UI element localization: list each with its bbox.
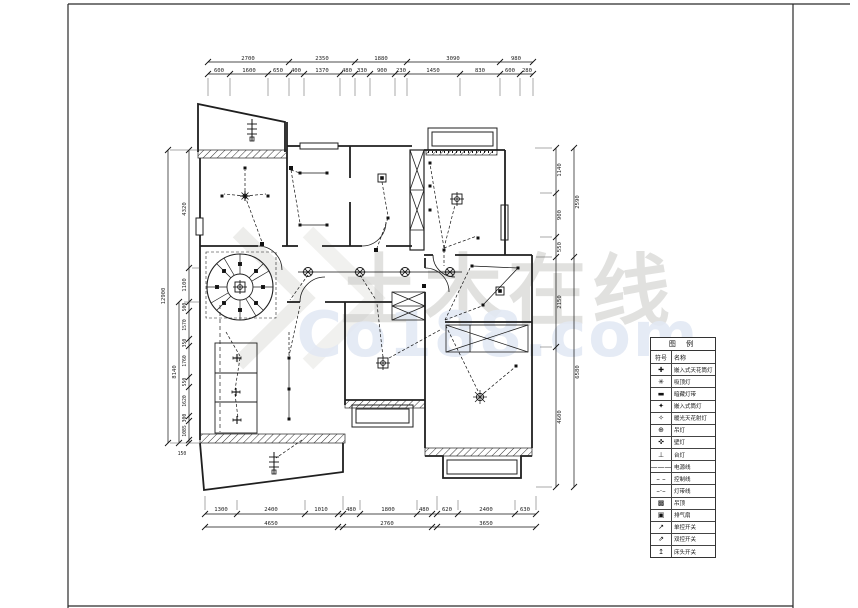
dim-label: 1880: [374, 56, 387, 62]
legend-row: ———电源线: [651, 461, 715, 473]
downlight-icon: ✦: [651, 401, 672, 412]
dim-label: 550: [557, 242, 563, 252]
dim-label: 1370: [315, 68, 328, 74]
legend-title: 图 例: [651, 338, 715, 351]
dim-label: 400: [291, 68, 301, 74]
legend-row: ✳吸顶灯: [651, 376, 715, 388]
legend-row: ▬暗藏灯带: [651, 388, 715, 400]
dim-label: 2400: [264, 507, 277, 513]
dim-label: 4600: [557, 410, 563, 423]
legend-row: ↗单控开关: [651, 522, 715, 534]
dim-label: 3090: [446, 56, 459, 62]
dim-label: 830: [475, 68, 485, 74]
dim-label: 1085: [182, 425, 188, 437]
legend-row-name: 暖光天花射灯: [672, 413, 715, 424]
dim-label: 1300: [214, 507, 227, 513]
dim-label: 330: [357, 68, 367, 74]
chandelier-icon: [247, 119, 257, 141]
wall-lamp-icon: ✜: [651, 437, 672, 448]
ceiling-panel-icon: ▩: [651, 498, 672, 509]
bedside-switch-icon: ↥: [651, 546, 672, 557]
legend-table: 图 例 符号 名称 ✚嵌入式天花筒灯 ✳吸顶灯 ▬暗藏灯带 ✦嵌入式筒灯 ✧暖光…: [650, 337, 716, 558]
dim-label: 1570: [182, 319, 188, 331]
dim-label: 4650: [264, 521, 277, 527]
dim-label: 1100: [182, 278, 188, 291]
dim-label: 1760: [182, 355, 188, 367]
recessed-downlight-icon: ✚: [651, 364, 672, 375]
legend-row-name: 吊顶: [672, 498, 715, 509]
dim-label: 12900: [161, 288, 167, 305]
solid-line-icon: ———: [651, 461, 672, 472]
dim-label: 980: [511, 56, 521, 62]
legend-row: – –控制线: [651, 473, 715, 485]
dimensions-bottom: 1300 2400 1010 480 1800 480 620 2400 630…: [202, 496, 539, 530]
dim-label: 1450: [426, 68, 439, 74]
dim-label: 900: [377, 68, 387, 74]
legend-row-name: 床头开关: [672, 546, 715, 557]
table-lamp-icon: ⊥: [651, 449, 672, 460]
legend-row-name: 控制线: [672, 473, 715, 484]
dim-label: 350: [182, 339, 188, 348]
square-light-icon: [376, 356, 390, 370]
dim-label: 600: [505, 68, 515, 74]
square-light-icon: [450, 192, 464, 206]
legend-row-name: 排气扇: [672, 510, 715, 521]
legend-row-name: 单控开关: [672, 522, 715, 533]
legend-row: ✧暖光天花射灯: [651, 413, 715, 425]
legend-row-name: 双控开关: [672, 534, 715, 545]
dim-label: 2400: [479, 507, 492, 513]
dim-label: 1600: [242, 68, 255, 74]
legend-row-name: 嵌入式筒灯: [672, 401, 715, 412]
dim-label: 500: [182, 303, 188, 312]
legend-row: ✜壁灯: [651, 437, 715, 449]
spotlight-icon: ✧: [651, 413, 672, 424]
dim-label: 480: [419, 507, 429, 513]
cad-drawing-canvas: 土木在线 Co188.com: [0, 0, 858, 608]
legend-row: ✦嵌入式筒灯: [651, 401, 715, 413]
dim-label: 480: [346, 507, 356, 513]
legend-row: ▣排气扇: [651, 510, 715, 522]
legend-row: ▩吊顶: [651, 498, 715, 510]
dim-label: 480: [342, 68, 352, 74]
dim-label: 2350: [315, 56, 328, 62]
dim-label: 280: [522, 68, 532, 74]
legend-row-name: 台灯: [672, 449, 715, 460]
double-switch-icon: ⇗: [651, 534, 672, 545]
legend-row: ↥床头开关: [651, 546, 715, 557]
legend-row-name: 嵌入式天花筒灯: [672, 364, 715, 375]
pendant-lamp-icon: ⊕: [651, 425, 672, 436]
legend-row-name: 电源线: [672, 461, 715, 472]
legend-row-name: 壁灯: [672, 437, 715, 448]
legend-row: –·–灯带线: [651, 485, 715, 497]
dim-label: 630: [520, 507, 530, 513]
single-switch-icon: ↗: [651, 522, 672, 533]
dim-label: 3650: [479, 521, 492, 527]
legend-row: ⊕吊灯: [651, 425, 715, 437]
legend-col-symbol: 符号: [651, 351, 672, 363]
dim-label: 620: [442, 507, 452, 513]
dimensions-left: 12900 8140 4320 1100 500 1570 350 1760 5…: [161, 147, 200, 457]
dim-label: 1800: [381, 507, 394, 513]
dim-label: 2150: [557, 295, 563, 308]
dim-label: 1620: [182, 395, 188, 407]
legend-row-name: 吊灯: [672, 425, 715, 436]
dim-label: 600: [214, 68, 224, 74]
legend-col-name: 名称: [672, 351, 715, 363]
chandelier-icon: [269, 452, 279, 474]
dim-label: 8140: [172, 365, 178, 378]
legend-row: ⇗双控开关: [651, 534, 715, 546]
dim-label: 4320: [182, 202, 188, 215]
dim-label: 1140: [557, 163, 563, 176]
legend-row-name: 吸顶灯: [672, 376, 715, 387]
exhaust-fan-icon: [378, 174, 386, 182]
dim-label: 6580: [575, 365, 581, 378]
dim-label: 900: [557, 210, 563, 220]
dim-label: 650: [273, 68, 283, 74]
legend-header-row: 符号 名称: [651, 351, 715, 364]
legend-row: ⊥台灯: [651, 449, 715, 461]
dimensions-top: 2700 2350 1880 3090 980 600 1600 650 400…: [205, 56, 536, 96]
watermark: 土木在线 Co188.com: [238, 232, 700, 371]
dim-label: 1010: [314, 507, 327, 513]
light-strip-icon: ▬: [651, 388, 672, 399]
legend-row-name: 灯带线: [672, 485, 715, 496]
shelving: [215, 305, 257, 433]
legend-row-name: 暗藏灯带: [672, 388, 715, 399]
dim-label: 2700: [241, 56, 254, 62]
legend-row: ✚嵌入式天花筒灯: [651, 364, 715, 376]
dim-label: 150: [178, 451, 187, 457]
dashdot-line-icon: –·–: [651, 485, 672, 496]
dim-label: 2760: [380, 521, 393, 527]
exhaust-fan-icon: ▣: [651, 510, 672, 521]
dim-label: 230: [396, 68, 406, 74]
dim-label: 2590: [575, 195, 581, 208]
dashed-line-icon: – –: [651, 473, 672, 484]
ceiling-lamp-icon: ✳: [651, 376, 672, 387]
dim-label: 550: [182, 378, 188, 387]
floorplan-svg: 土木在线 Co188.com: [0, 0, 858, 608]
dim-label: 300: [182, 414, 188, 423]
